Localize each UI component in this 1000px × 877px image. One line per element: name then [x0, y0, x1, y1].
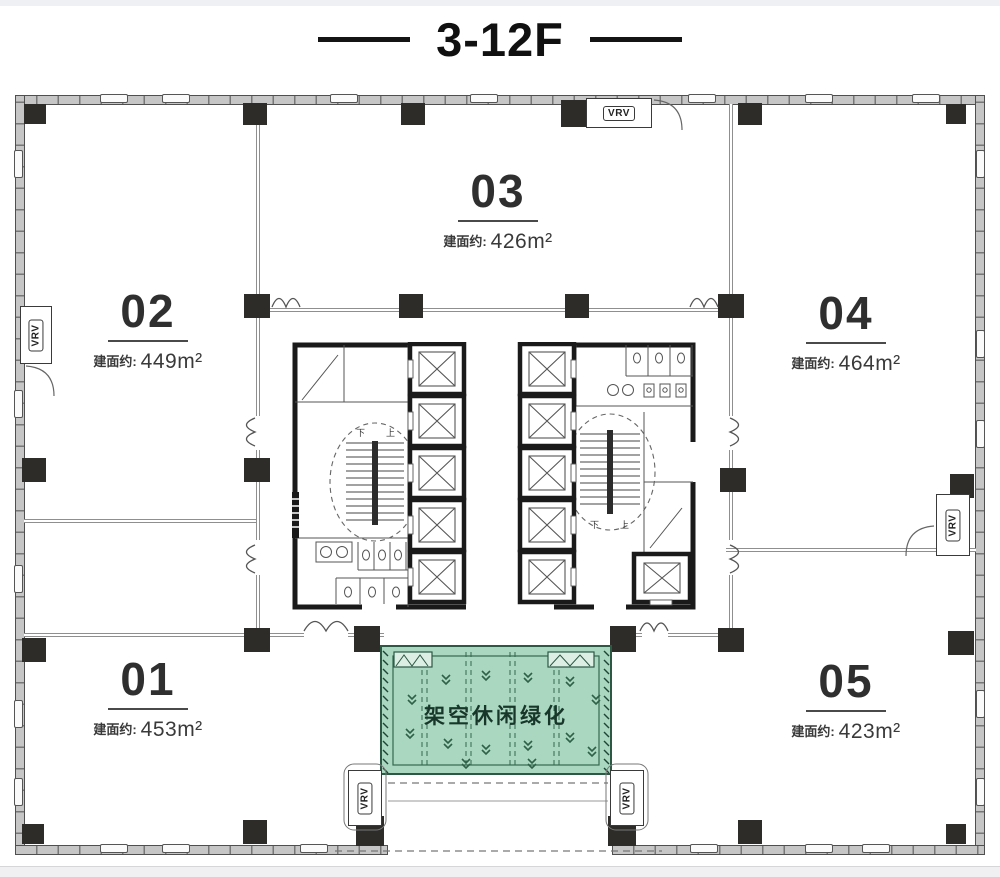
vrv-unit-right: VRV: [936, 494, 970, 556]
structural-column: [561, 100, 587, 127]
hatch-tick: [383, 660, 388, 665]
hatch-tick: [383, 723, 388, 728]
plant-icon: [524, 741, 532, 750]
curtain-wall-window: [100, 844, 128, 853]
structural-column: [738, 820, 762, 844]
plant-icon: [524, 673, 532, 682]
structural-column: [22, 458, 46, 482]
unit-label-05: 05 建面约:423m²: [781, 658, 911, 744]
hatch-tick: [604, 669, 609, 674]
green-terrace: 架空休闲绿化: [380, 645, 612, 775]
curtain-wall-window: [330, 94, 358, 103]
unit-label-03: 03 建面约:426m²: [433, 168, 563, 254]
unit-number: 04: [781, 290, 911, 336]
hatch-tick: [604, 687, 609, 692]
partition-wall: [729, 575, 733, 635]
stair-down-label: 下: [590, 520, 599, 530]
vrv-label: VRV: [357, 782, 372, 814]
hatch-tick: [383, 741, 388, 746]
structural-column: [738, 103, 762, 125]
unit-underline: [806, 342, 886, 344]
hatch-tick: [383, 732, 388, 737]
curtain-wall-window: [100, 94, 128, 103]
stair-rail: [607, 430, 613, 514]
partition-wall: [24, 519, 258, 523]
unit-area-value: 426m²: [491, 230, 553, 253]
vrv-label: VRV: [619, 782, 634, 814]
hatch-tick: [383, 759, 388, 764]
title-dash-left: [318, 37, 410, 42]
vrv-unit-bottom-right: VRV: [610, 770, 644, 826]
elevator-door: [571, 412, 576, 430]
unit-underline: [458, 220, 538, 222]
curtain-wall-window: [14, 565, 23, 593]
plant-icon: [566, 733, 574, 742]
structural-column: [946, 824, 966, 844]
partition-wall: [256, 575, 260, 635]
plant-icon: [482, 745, 490, 754]
elevator-bank: [408, 344, 464, 602]
vrv-label: VRV: [603, 106, 635, 121]
unit-label-01: 01 建面约:453m²: [83, 656, 213, 742]
vrv-unit-top: VRV: [586, 98, 652, 128]
exterior-wall-top: [15, 95, 985, 105]
hatch-tick: [604, 678, 609, 683]
hatch-tick: [604, 696, 609, 701]
hatch-tick: [383, 696, 388, 701]
exterior-wall-right: [975, 95, 985, 855]
curtain-wall-window: [862, 844, 890, 853]
toilet-area: [316, 542, 408, 604]
structural-column: [948, 631, 974, 655]
curtain-wall-window: [14, 390, 23, 418]
unit-underline: [806, 710, 886, 712]
hatch-tick: [604, 723, 609, 728]
curtain-wall-window: [805, 844, 833, 853]
plant-icon: [528, 759, 536, 768]
hatch-tick: [383, 714, 388, 719]
elevator-door: [408, 568, 413, 586]
structural-column: [946, 104, 966, 124]
hatch-tick: [604, 768, 609, 773]
unit-number: 03: [433, 168, 563, 214]
unit-label-04: 04 建面约:464m²: [781, 290, 911, 376]
hatch-tick: [383, 687, 388, 692]
curtain-wall-window: [162, 94, 190, 103]
curtain-wall-window: [976, 420, 985, 448]
hatch-tick: [604, 651, 609, 656]
terrace-label: 架空休闲绿化: [424, 704, 568, 728]
hatch-tick: [604, 732, 609, 737]
plant-icon: [442, 675, 450, 684]
hatch-tick: [383, 678, 388, 683]
structural-column: [243, 820, 267, 844]
floor-plan: 下 上 下 上: [0, 0, 1000, 876]
unit-number: 02: [83, 288, 213, 334]
curtain-wall-window: [688, 94, 716, 103]
unit-area-label: 建面约:: [791, 356, 834, 371]
structural-column: [244, 628, 270, 652]
unit-area-label: 建面约:: [443, 234, 486, 249]
hatch-tick: [604, 714, 609, 719]
partition-wall: [729, 104, 733, 416]
unit-underline: [108, 708, 188, 710]
structural-column: [399, 294, 423, 318]
curtain-wall-window: [14, 150, 23, 178]
unit-area-value: 453m²: [141, 718, 203, 741]
elevator-door: [408, 464, 413, 482]
unit-area-value: 464m²: [839, 352, 901, 375]
curtain-wall-window: [976, 778, 985, 806]
structural-column: [244, 294, 270, 318]
curtain-wall-window: [976, 150, 985, 178]
plant-icon: [566, 677, 574, 686]
unit-area-label: 建面约:: [93, 354, 136, 369]
hatch-tick: [383, 651, 388, 656]
core-room-lines: [295, 345, 408, 607]
green-terrace-drawing: 架空休闲绿化: [382, 647, 610, 773]
vrv-unit-left: VRV: [20, 306, 52, 364]
structural-column: [24, 104, 46, 124]
unit-number: 01: [83, 656, 213, 702]
hatch-tick: [604, 705, 609, 710]
vrv-label: VRV: [945, 509, 960, 541]
vrv-label: VRV: [29, 319, 44, 351]
hatch-tick: [604, 660, 609, 665]
hatch-tick: [383, 669, 388, 674]
structural-column: [244, 458, 270, 482]
elevator-door: [571, 360, 576, 378]
unit-number: 05: [781, 658, 911, 704]
structural-column: [243, 103, 267, 125]
hatch-tick: [383, 768, 388, 773]
plant-icon: [588, 747, 596, 756]
unit-underline: [108, 340, 188, 342]
structural-column: [22, 824, 44, 844]
structural-column: [720, 468, 746, 492]
unit-area-label: 建面约:: [93, 722, 136, 737]
exterior-wall-bottom-left: [15, 845, 388, 855]
elevator-door: [408, 360, 413, 378]
unit-area-value: 449m²: [141, 350, 203, 373]
page-title: 3-12F: [0, 6, 1000, 72]
structural-column: [401, 103, 425, 125]
plant-icon: [406, 729, 414, 738]
hatch-tick: [604, 741, 609, 746]
partition-wall: [729, 450, 733, 540]
curtain-wall-window: [162, 844, 190, 853]
curtain-wall-window: [300, 844, 328, 853]
planter-box: [394, 652, 594, 667]
unit-area-label: 建面约:: [791, 724, 834, 739]
stair-down-label: 下: [356, 428, 365, 438]
elevator-door: [571, 568, 576, 586]
hatch-tick: [383, 750, 388, 755]
structural-column: [718, 628, 744, 652]
freight-elevator: [634, 554, 690, 605]
elevator-door: [408, 412, 413, 430]
elevator-bank: [520, 344, 576, 602]
elevator-door: [408, 516, 413, 534]
plant-icon: [482, 671, 490, 680]
left-core-plan: 下 上: [292, 342, 468, 610]
unit-label-02: 02 建面约:449m²: [83, 288, 213, 374]
structural-column: [565, 294, 589, 318]
stair-rail: [372, 441, 378, 525]
right-core-plan: 下 上: [514, 342, 696, 610]
curtain-wall-window: [805, 94, 833, 103]
elevator-door: [571, 464, 576, 482]
plant-icon: [444, 739, 452, 748]
structural-column: [718, 294, 744, 318]
toilet-area: [608, 345, 694, 397]
structural-column: [610, 626, 636, 652]
title-dash-right: [590, 37, 682, 42]
curtain-wall-window: [14, 700, 23, 728]
curtain-wall-window: [976, 330, 985, 358]
curtain-wall-window: [912, 94, 940, 103]
elevator-door: [571, 516, 576, 534]
floor-range-title: 3-12F: [436, 16, 564, 63]
partition-wall: [262, 308, 730, 312]
hatch-tick: [383, 705, 388, 710]
exterior-wall-bottom-right: [612, 845, 985, 855]
hatch-tick: [604, 750, 609, 755]
structural-column: [354, 626, 380, 652]
curtain-wall-window: [14, 778, 23, 806]
curtain-wall-window: [976, 690, 985, 718]
structural-column: [22, 638, 46, 662]
plant-icon: [408, 695, 416, 704]
curtain-wall-window: [470, 94, 498, 103]
curtain-wall-window: [690, 844, 718, 853]
stair-up-label: 上: [386, 428, 395, 438]
hatch-tick: [604, 759, 609, 764]
unit-area-value: 423m²: [839, 720, 901, 743]
vrv-unit-bottom-left: VRV: [348, 770, 382, 826]
stair-up-label: 上: [620, 520, 629, 530]
partition-wall: [256, 104, 260, 416]
